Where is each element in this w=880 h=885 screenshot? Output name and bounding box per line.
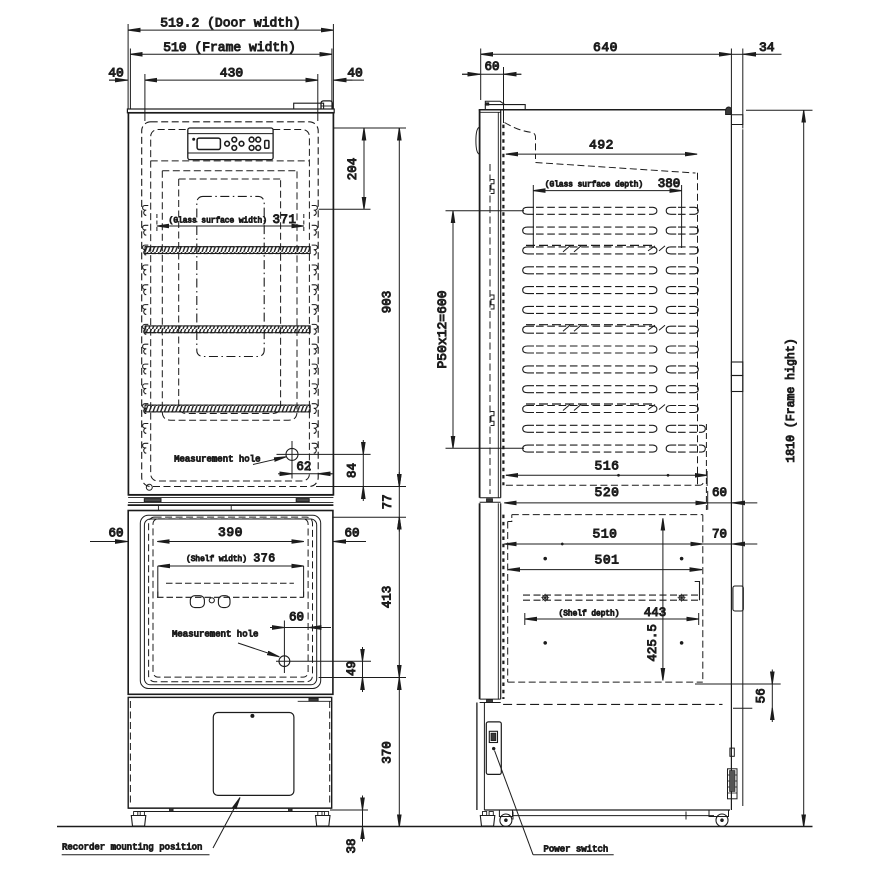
- svg-text:501: 501: [595, 552, 620, 567]
- svg-text:903: 903: [381, 291, 395, 314]
- svg-text:P50x12=600: P50x12=600: [435, 290, 450, 368]
- svg-text:(Shelf depth): (Shelf depth): [559, 610, 620, 618]
- svg-text:84: 84: [346, 463, 360, 478]
- svg-text:60: 60: [289, 611, 304, 625]
- svg-text:40: 40: [108, 66, 124, 81]
- svg-text:204: 204: [346, 158, 360, 181]
- svg-text:34: 34: [759, 40, 775, 55]
- svg-text:520: 520: [595, 485, 620, 500]
- svg-text:(Glass surface depth): (Glass surface depth): [545, 181, 643, 189]
- svg-text:425.5: 425.5: [646, 624, 660, 662]
- svg-text:492: 492: [589, 138, 614, 153]
- svg-text:Recorder mounting position: Recorder mounting position: [62, 842, 202, 852]
- svg-text:60: 60: [484, 60, 499, 74]
- svg-text:519.2 (Door width): 519.2 (Door width): [160, 16, 300, 31]
- svg-text:510 (Frame width): 510 (Frame width): [163, 40, 296, 55]
- svg-text:413: 413: [381, 586, 395, 609]
- svg-text:430: 430: [220, 66, 243, 81]
- svg-text:390: 390: [218, 525, 243, 540]
- svg-text:376: 376: [253, 552, 275, 565]
- svg-text:510: 510: [593, 527, 618, 542]
- svg-text:77: 77: [381, 494, 395, 509]
- svg-text:60: 60: [108, 526, 123, 540]
- svg-text:640: 640: [593, 40, 618, 55]
- svg-text:40: 40: [347, 66, 363, 81]
- svg-text:60: 60: [712, 486, 727, 500]
- svg-text:49: 49: [345, 661, 359, 676]
- svg-text:1810 (Frame hight): 1810 (Frame hight): [785, 338, 798, 462]
- svg-text:516: 516: [595, 459, 620, 474]
- svg-text:Measurement hole: Measurement hole: [172, 630, 258, 640]
- svg-text:(Glass surface width): (Glass surface width): [169, 217, 267, 225]
- svg-text:370: 370: [381, 741, 395, 764]
- svg-text:371: 371: [272, 213, 296, 227]
- svg-text:380: 380: [658, 177, 681, 191]
- svg-text:60: 60: [344, 526, 359, 540]
- svg-text:Power switch: Power switch: [544, 844, 609, 854]
- svg-text:38: 38: [345, 838, 359, 853]
- svg-text:(Shelf width): (Shelf width): [186, 556, 247, 564]
- svg-text:Measurement hole: Measurement hole: [174, 455, 260, 465]
- svg-text:62: 62: [296, 460, 311, 474]
- svg-text:70: 70: [712, 528, 727, 542]
- svg-text:56: 56: [755, 688, 769, 703]
